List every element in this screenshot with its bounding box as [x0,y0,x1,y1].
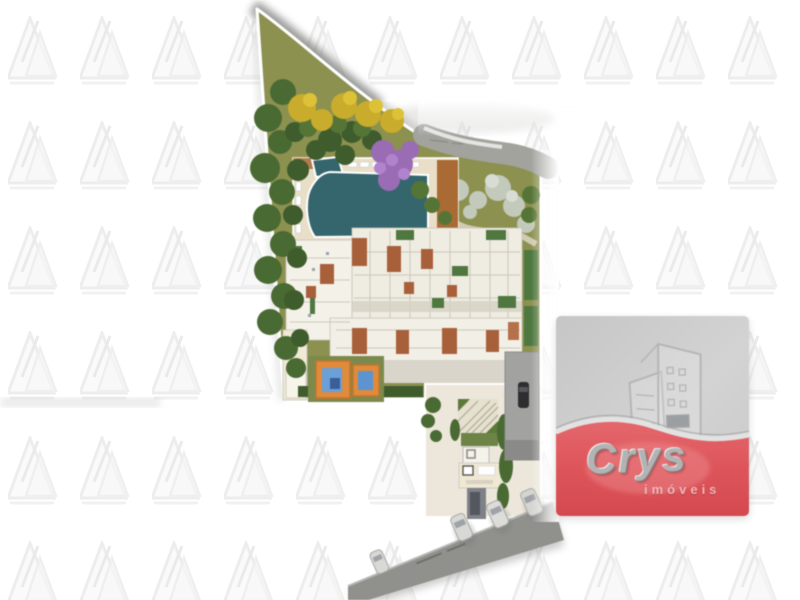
pergola [458,399,498,433]
right-edge-fade [531,150,559,522]
road-top-fade [418,92,578,136]
brand-name: Crys [585,432,688,484]
black-car [518,382,529,408]
playground [308,356,384,402]
listing-image: Crys imóveis [0,0,800,600]
crys-logo: Crys imóveis [556,316,749,516]
swimming-pool [307,172,428,237]
garden-bed [461,433,498,446]
brand-tagline: imóveis [644,482,720,497]
